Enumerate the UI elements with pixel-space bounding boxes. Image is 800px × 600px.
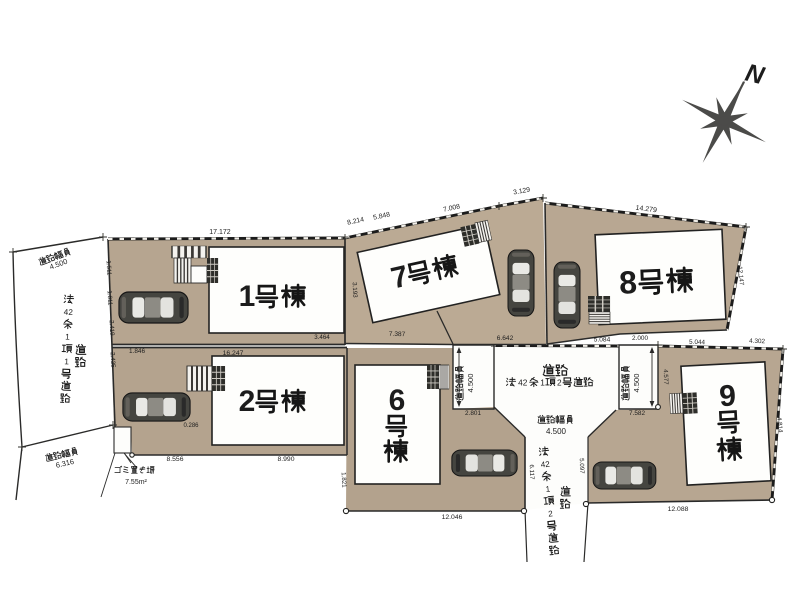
svg-text:1: 1 — [239, 280, 256, 313]
svg-text:2: 2 — [557, 378, 562, 388]
svg-text:N: N — [743, 59, 768, 91]
svg-text:1.811: 1.811 — [106, 290, 114, 306]
svg-text:42: 42 — [540, 460, 550, 470]
svg-text:2.419: 2.419 — [108, 320, 116, 336]
svg-text:5.097: 5.097 — [578, 458, 586, 474]
svg-text:12.046: 12.046 — [442, 514, 463, 521]
svg-text:2: 2 — [548, 509, 554, 518]
svg-text:5.084: 5.084 — [594, 337, 611, 344]
svg-text:1.846: 1.846 — [129, 348, 145, 355]
svg-text:17.172: 17.172 — [209, 229, 231, 236]
svg-text:1: 1 — [64, 357, 69, 366]
svg-text:7.55m²: 7.55m² — [125, 479, 147, 486]
svg-text:5.848: 5.848 — [373, 211, 391, 221]
svg-text:42: 42 — [64, 308, 74, 317]
svg-text:5.044: 5.044 — [689, 339, 706, 347]
svg-text:4.500: 4.500 — [546, 427, 567, 436]
svg-text:8.556: 8.556 — [166, 456, 183, 463]
svg-text:2.000: 2.000 — [632, 335, 648, 342]
svg-text:1: 1 — [65, 333, 70, 342]
svg-text:4.500: 4.500 — [466, 373, 475, 392]
svg-text:8.214: 8.214 — [347, 216, 365, 226]
svg-text:2: 2 — [239, 385, 256, 418]
svg-text:4.577: 4.577 — [662, 369, 670, 385]
svg-text:2.801: 2.801 — [465, 410, 481, 417]
svg-text:6: 6 — [389, 384, 406, 417]
svg-text:3.193: 3.193 — [351, 282, 359, 298]
svg-text:1: 1 — [540, 378, 545, 388]
svg-text:12.147: 12.147 — [736, 266, 745, 286]
svg-text:0.286: 0.286 — [183, 423, 199, 429]
svg-text:6.316: 6.316 — [55, 457, 75, 470]
svg-text:7.582: 7.582 — [629, 410, 645, 417]
svg-text:9: 9 — [718, 379, 736, 413]
svg-text:42: 42 — [518, 378, 528, 388]
svg-text:7.387: 7.387 — [389, 331, 406, 339]
svg-text:16.247: 16.247 — [223, 350, 244, 357]
svg-text:4.500: 4.500 — [632, 373, 641, 392]
svg-text:7.008: 7.008 — [443, 203, 461, 213]
svg-text:12.088: 12.088 — [668, 506, 689, 513]
svg-text:6.117: 6.117 — [528, 464, 536, 480]
svg-text:1.821: 1.821 — [340, 472, 348, 488]
svg-text:8.990: 8.990 — [277, 456, 294, 463]
svg-text:8: 8 — [618, 264, 637, 301]
svg-text:1.511: 1.511 — [105, 260, 113, 276]
svg-text:4.302: 4.302 — [749, 338, 766, 346]
svg-text:3.129: 3.129 — [513, 187, 531, 197]
svg-text:6.642: 6.642 — [497, 335, 514, 342]
svg-text:2.435: 2.435 — [109, 352, 117, 368]
svg-text:3.464: 3.464 — [314, 334, 330, 341]
